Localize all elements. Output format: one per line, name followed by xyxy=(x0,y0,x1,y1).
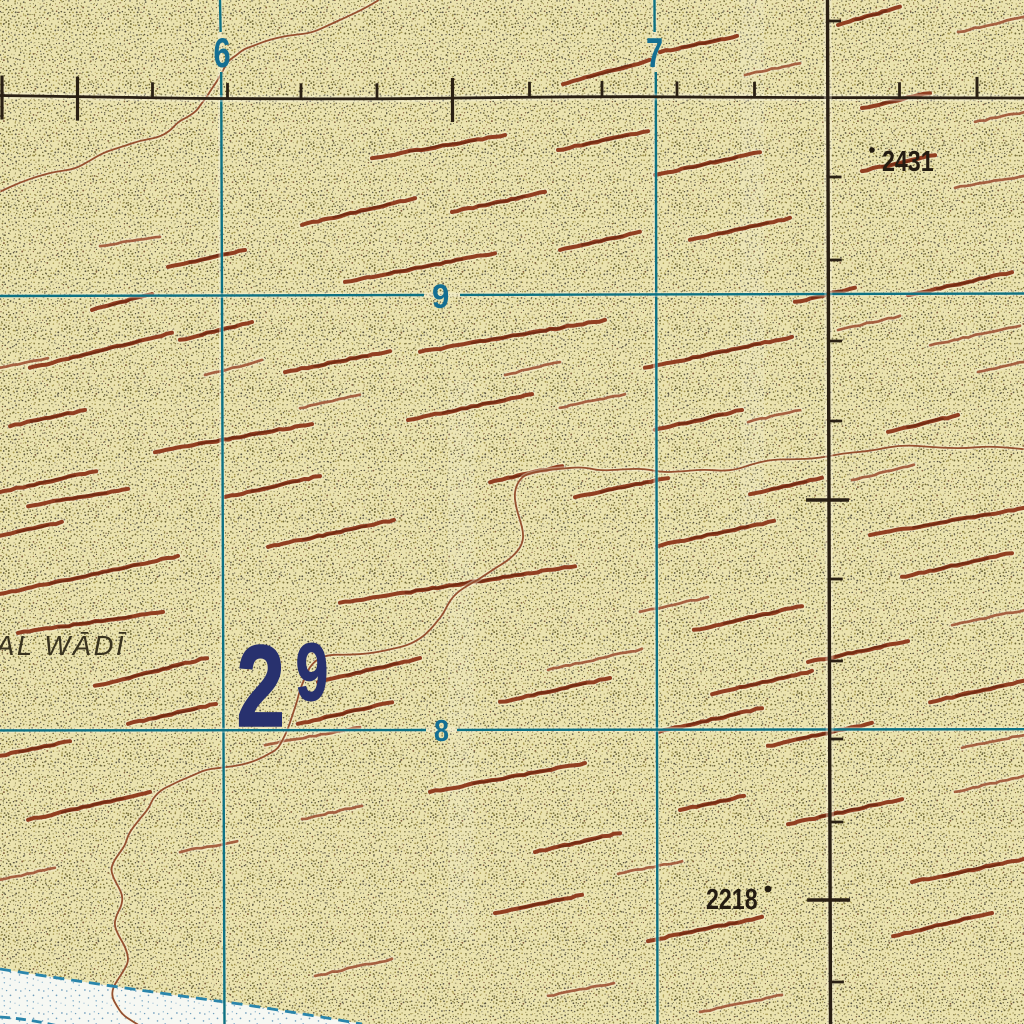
svg-text:7: 7 xyxy=(646,29,663,76)
svg-text:2: 2 xyxy=(237,621,285,751)
svg-text:2218: 2218 xyxy=(706,882,758,915)
svg-text:2431: 2431 xyxy=(882,144,934,177)
svg-text:6: 6 xyxy=(214,29,231,76)
svg-text:9: 9 xyxy=(296,627,329,719)
svg-text:9: 9 xyxy=(432,276,449,315)
svg-text:AL WĀDĪ: AL WĀDĪ xyxy=(0,630,127,661)
svg-text:8: 8 xyxy=(434,714,449,748)
